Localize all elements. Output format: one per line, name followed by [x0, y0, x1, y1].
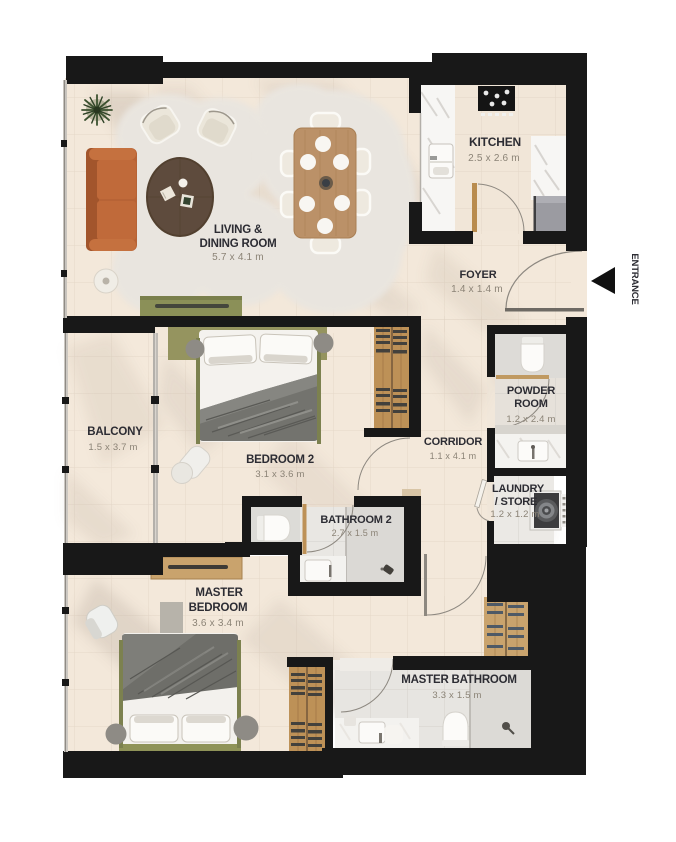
svg-text:KITCHEN: KITCHEN [469, 135, 521, 149]
svg-text:BALCONY: BALCONY [87, 426, 143, 438]
svg-text:2.7 x 1.5 m: 2.7 x 1.5 m [332, 528, 379, 538]
svg-text:1.1 x 4.1 m: 1.1 x 4.1 m [430, 451, 477, 461]
svg-text:3.3 x 1.5 m: 3.3 x 1.5 m [432, 690, 481, 701]
svg-text:1.2 x 1.2 m: 1.2 x 1.2 m [490, 509, 539, 520]
svg-text:POWDER: POWDER [507, 385, 556, 397]
svg-text:2.5 x 2.6 m: 2.5 x 2.6 m [468, 153, 520, 164]
svg-text:CORRIDOR: CORRIDOR [424, 436, 483, 448]
svg-text:BEDROOM 2: BEDROOM 2 [246, 454, 314, 466]
svg-text:1.2 x 2.4 m: 1.2 x 2.4 m [506, 414, 555, 425]
svg-text:FOYER: FOYER [460, 269, 497, 281]
svg-text:MASTER BATHROOM: MASTER BATHROOM [401, 674, 517, 686]
svg-text:/ STORE: / STORE [495, 496, 537, 508]
svg-text:LAUNDRY: LAUNDRY [492, 483, 545, 495]
svg-text:MASTER: MASTER [195, 587, 243, 599]
svg-text:DINING ROOM: DINING ROOM [199, 238, 276, 250]
svg-text:5.7 x 4.1 m: 5.7 x 4.1 m [212, 252, 264, 263]
svg-text:ROOM: ROOM [514, 398, 547, 410]
svg-text:LIVING &: LIVING & [214, 224, 262, 236]
svg-text:1.5 x 3.7 m: 1.5 x 3.7 m [88, 442, 137, 453]
svg-text:3.6 x 3.4 m: 3.6 x 3.4 m [192, 618, 244, 629]
svg-text:3.1 x 3.6 m: 3.1 x 3.6 m [255, 469, 304, 480]
svg-text:ENTRANCE: ENTRANCE [629, 253, 640, 304]
svg-text:BEDROOM: BEDROOM [189, 602, 248, 614]
svg-text:1.4 x 1.4 m: 1.4 x 1.4 m [451, 284, 503, 295]
svg-text:BATHROOM 2: BATHROOM 2 [320, 514, 391, 526]
